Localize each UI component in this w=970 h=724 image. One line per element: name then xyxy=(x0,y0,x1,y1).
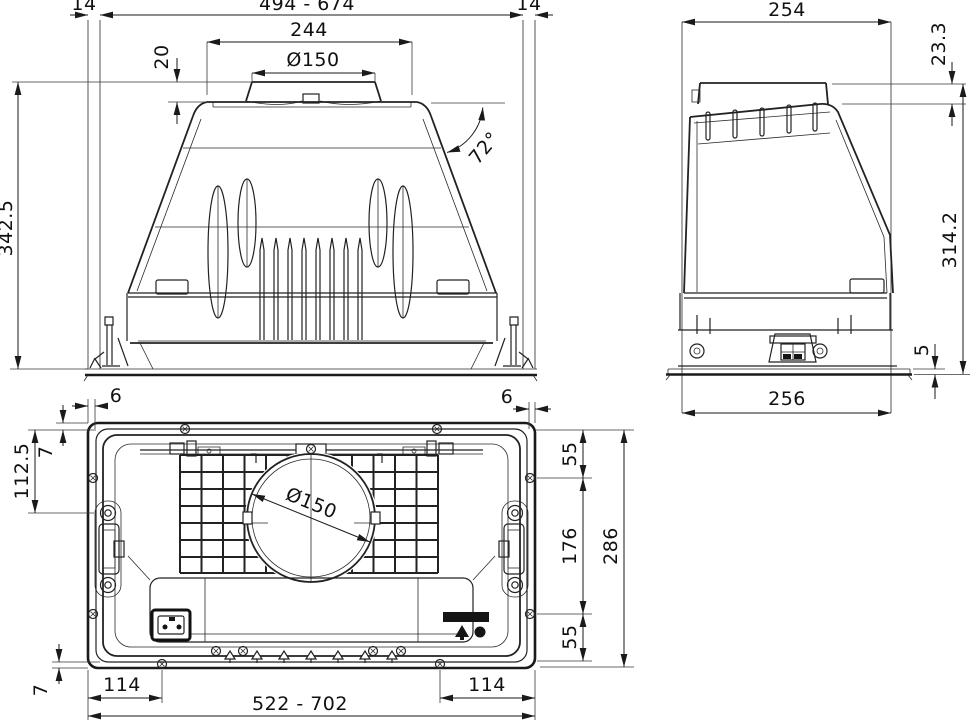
dim-label-collar-height: 20 xyxy=(151,44,173,69)
motor-dot-symbol-icon xyxy=(475,627,486,638)
side-dimensions: 254 23.3 314.2 5 256 xyxy=(682,0,970,413)
side-collar xyxy=(692,83,828,104)
power-socket-icon xyxy=(152,610,190,640)
dim-label-angle: 72° xyxy=(465,128,504,169)
dim-label-body-height: 314.2 xyxy=(939,212,961,269)
dim-label-lip-top: 7 xyxy=(35,446,57,459)
front-corner-latch-right xyxy=(495,317,533,368)
dim-label-latch-offset: 112.5 xyxy=(11,443,33,500)
dim-label-gap-right: 14 xyxy=(516,0,541,15)
cabinet-wall-lines xyxy=(88,20,535,369)
duct-tab-right xyxy=(371,512,380,524)
side-walls-outer xyxy=(128,116,496,293)
latch-left xyxy=(95,501,124,597)
hood-dimension-drawing: 14 494 - 674 14 244 Ø150 20 342.5 72° xyxy=(0,0,970,724)
dim-label-lip-bottom: 7 xyxy=(30,684,52,697)
interior-seams xyxy=(155,148,469,227)
latch-right xyxy=(499,501,528,597)
lamp-symbol-icon xyxy=(455,625,469,640)
side-body xyxy=(684,103,893,293)
dim-label-screw-left: 114 xyxy=(103,674,141,696)
dim-label-hole-bottom: 55 xyxy=(559,624,581,649)
side-flange xyxy=(666,369,912,380)
front-dimensions: 14 494 - 674 14 244 Ø150 20 342.5 72° xyxy=(0,0,553,369)
dim-label-bottom-width: 522 - 702 xyxy=(252,693,348,715)
dim-label-edge-right: 6 xyxy=(501,386,514,408)
side-walls-inner xyxy=(137,119,487,291)
base-box xyxy=(127,280,497,369)
dim-label-overall-width: 494 - 674 xyxy=(259,0,355,15)
rating-label xyxy=(443,612,489,640)
dim-label-duct-front: Ø150 xyxy=(286,49,339,71)
dim-label-gap-left: 14 xyxy=(71,0,96,15)
dim-label-overall-height: 342.5 xyxy=(0,200,17,257)
dim-label-base-depth: 256 xyxy=(768,388,806,410)
dim-label-screw-right: 114 xyxy=(468,674,506,696)
technical-drawing-page: 14 494 - 674 14 244 Ø150 20 342.5 72° xyxy=(0,0,970,724)
duct-tab-left xyxy=(243,512,252,524)
side-base xyxy=(678,293,897,366)
dim-label-cutout-depth: 286 xyxy=(600,527,622,565)
dim-label-flange-thickness: 5 xyxy=(911,344,933,357)
front-corner-latch-left xyxy=(90,317,128,368)
dim-label-top-width: 244 xyxy=(290,19,328,41)
dim-label-depth: 254 xyxy=(768,0,806,21)
bottom-plate xyxy=(84,369,537,381)
dim-label-collar-drop: 23.3 xyxy=(928,22,950,66)
center-ribs xyxy=(260,238,362,340)
dim-label-hole-top: 55 xyxy=(559,441,581,466)
dim-label-edge-left: 6 xyxy=(110,385,123,407)
front-view xyxy=(84,20,537,381)
bottom-view: Ø150 xyxy=(88,423,535,669)
hood-top xyxy=(193,102,431,116)
dim-label-hole-spacing: 176 xyxy=(559,527,581,565)
side-view xyxy=(666,22,912,413)
rating-label-text-strip xyxy=(443,612,489,622)
